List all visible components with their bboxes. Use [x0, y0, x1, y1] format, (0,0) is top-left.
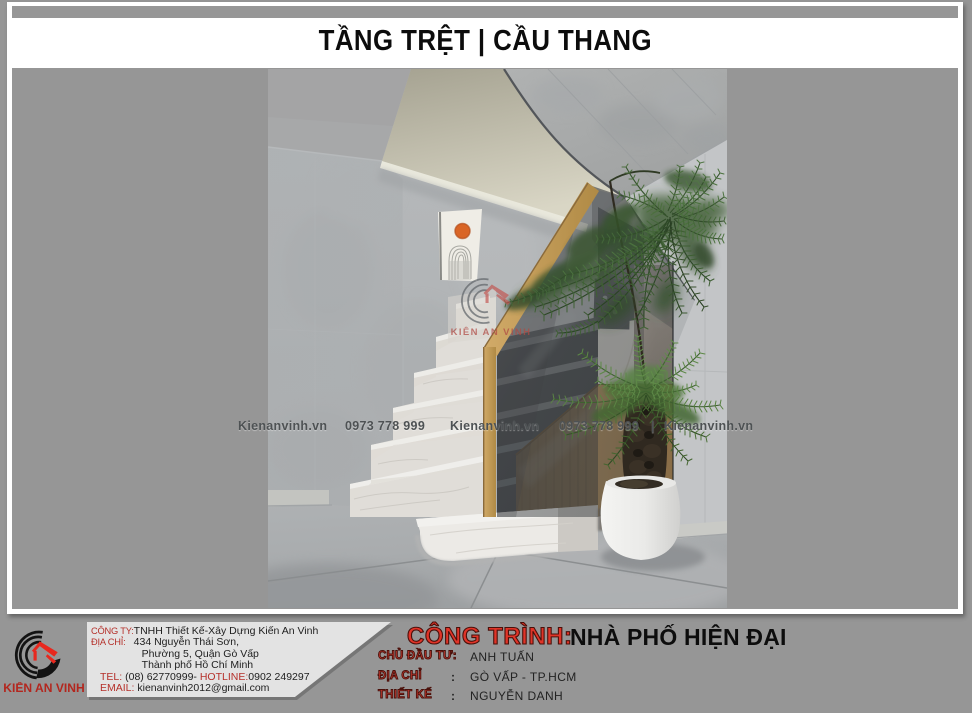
- svg-text:KIÊN AN VINH: KIÊN AN VINH: [451, 326, 532, 338]
